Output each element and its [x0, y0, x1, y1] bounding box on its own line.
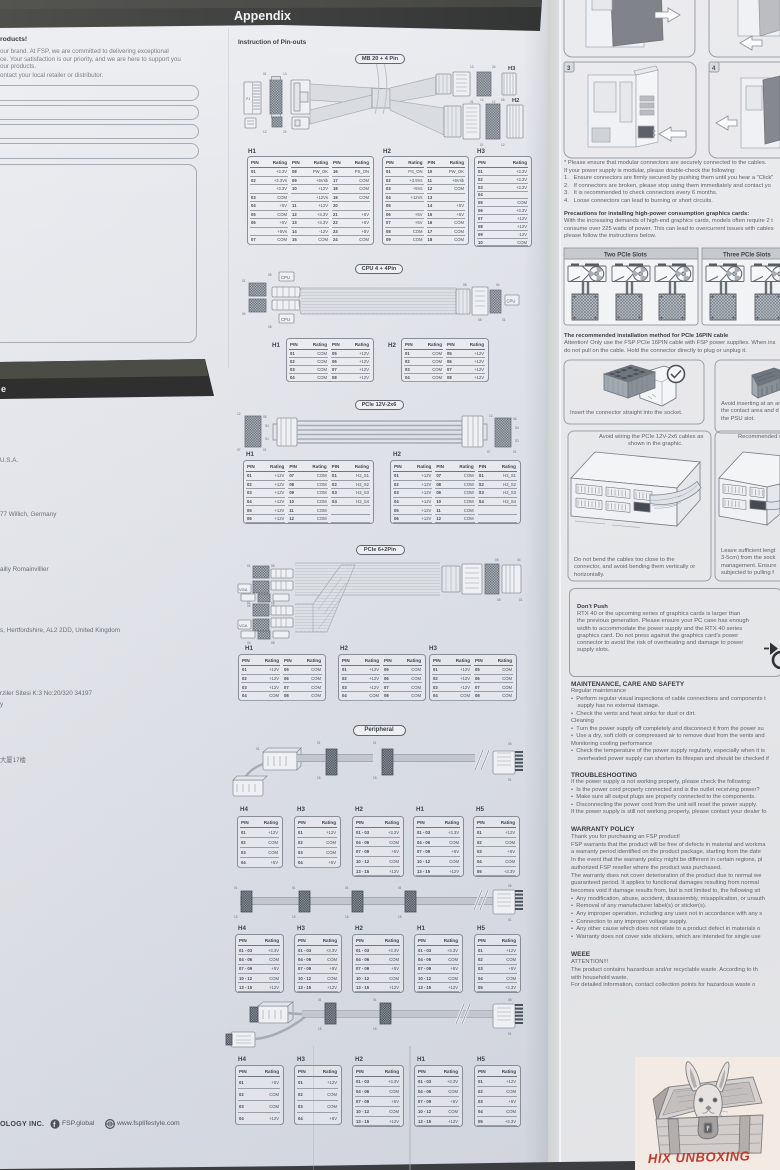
svg-text:HIX UNBOXING: HIX UNBOXING [648, 1148, 751, 1166]
